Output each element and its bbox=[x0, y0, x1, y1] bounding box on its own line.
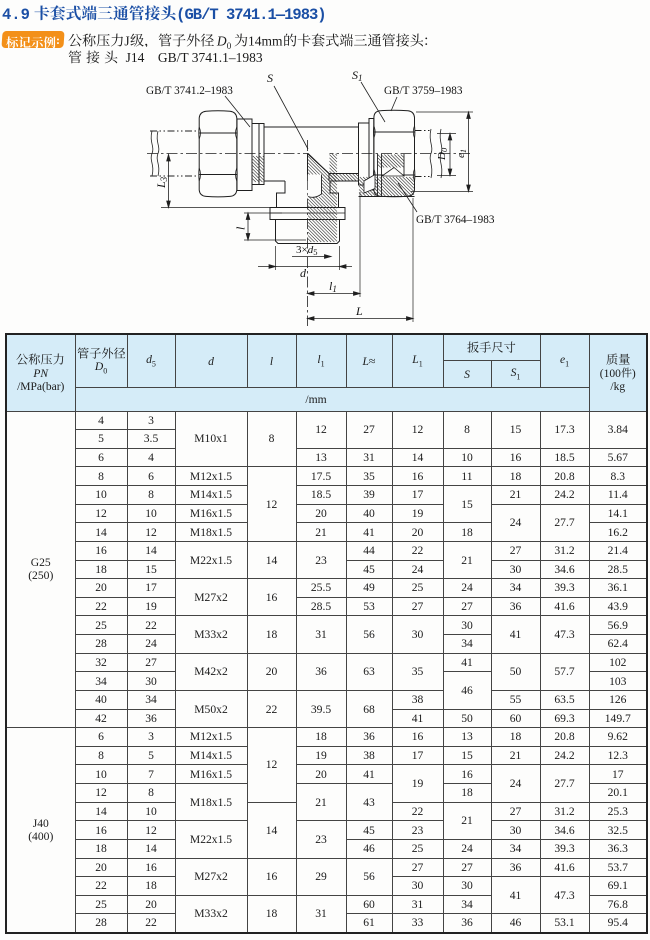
svg-text:GB/T 3759–1983: GB/T 3759–1983 bbox=[384, 85, 463, 97]
svg-text:GB/T 3741.2–1983: GB/T 3741.2–1983 bbox=[146, 85, 233, 97]
svg-text:L3: L3 bbox=[154, 176, 169, 189]
svg-text:S: S bbox=[267, 71, 273, 85]
svg-text:D0: D0 bbox=[436, 147, 449, 161]
svg-text:l: l bbox=[234, 226, 248, 230]
svg-text:GB/T 3764–1983: GB/T 3764–1983 bbox=[416, 214, 495, 226]
svg-text:S1: S1 bbox=[352, 68, 363, 83]
svg-text:3×d5: 3×d5 bbox=[296, 244, 317, 257]
svg-text:d: d bbox=[300, 266, 307, 280]
svg-text:l1: l1 bbox=[329, 279, 337, 294]
svg-text:e1: e1 bbox=[455, 149, 468, 158]
svg-text:L: L bbox=[355, 304, 363, 318]
